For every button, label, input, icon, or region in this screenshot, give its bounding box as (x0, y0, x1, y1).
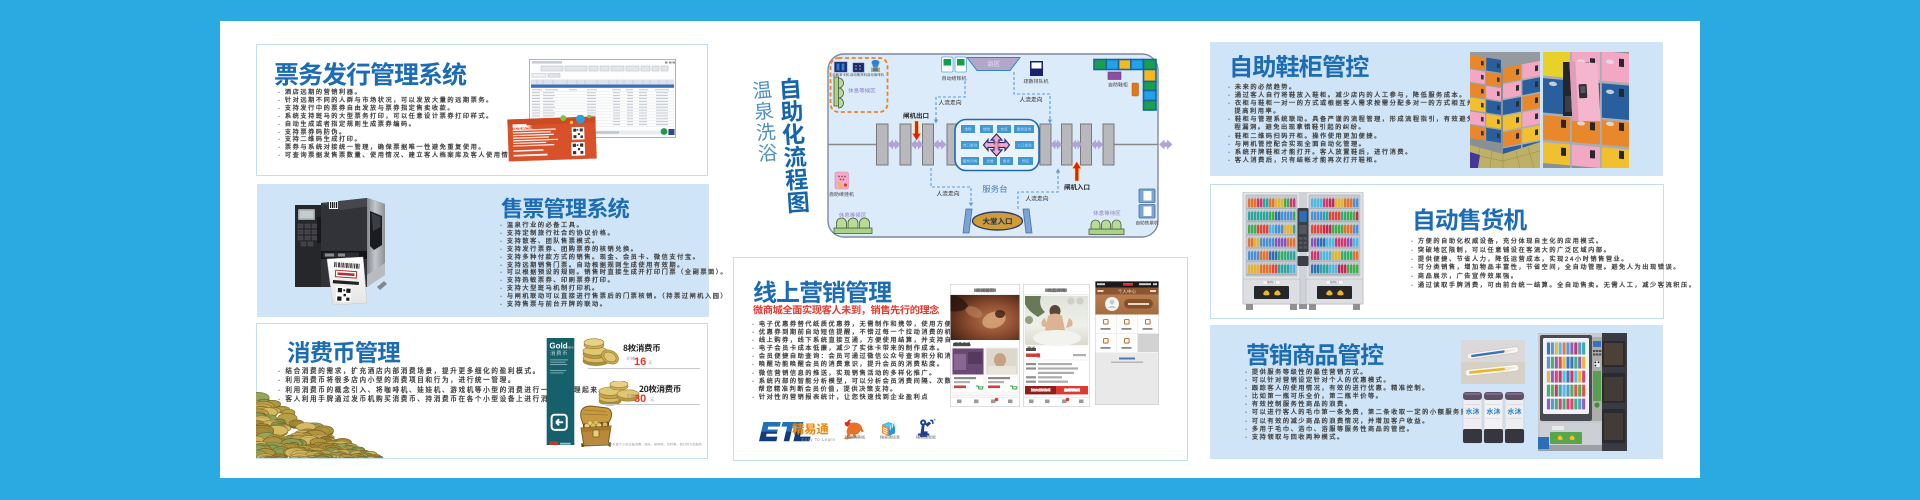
svg-text:Coins: Coins (565, 346, 574, 350)
svg-text:Easy To Learn: Easy To Learn (802, 437, 836, 442)
